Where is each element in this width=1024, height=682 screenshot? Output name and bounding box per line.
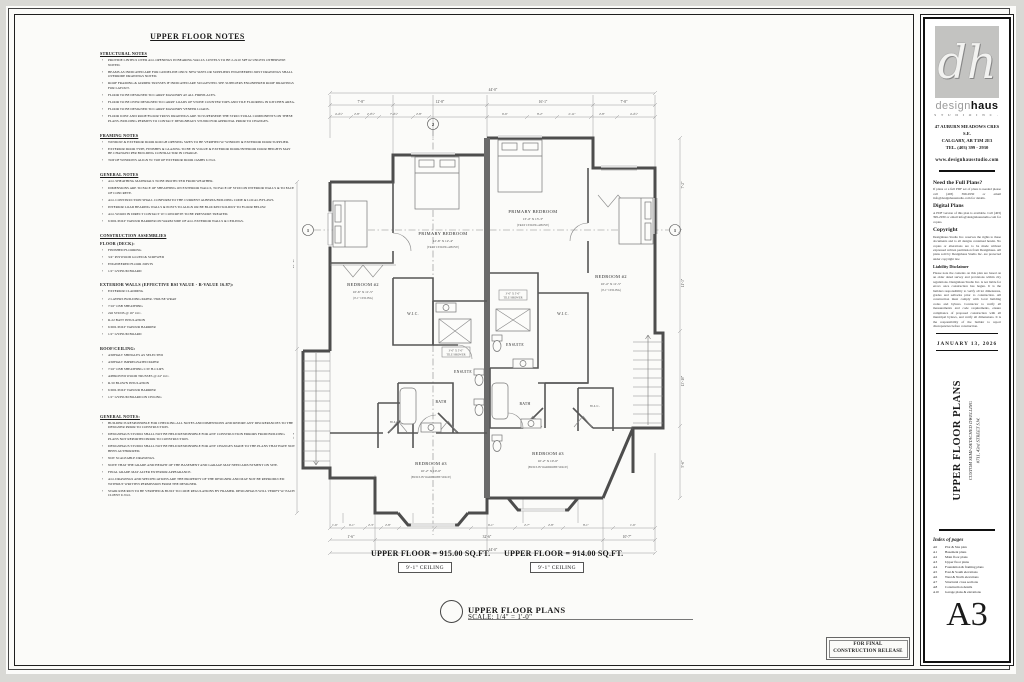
notes-section-general-bottom: GENERAL NOTES: BUILDER IS RESPONSIBLE FO… xyxy=(100,414,295,498)
dim-label: 16'-10" xyxy=(293,257,295,268)
architectural-sheet: { "sheet": { "number": "A3", "date": "JA… xyxy=(0,0,1024,682)
room-sub: (BUILT-IN WARDROBE SPACE) xyxy=(411,475,451,479)
index-row: A10Garage plans & elevations xyxy=(931,590,1003,595)
brand-name: designhaus xyxy=(931,100,1003,112)
titleblock-section-copyright: Copyright Designhaus Studio Inc. reserve… xyxy=(933,227,1001,261)
dim-label: 6'-1" xyxy=(488,523,495,527)
room-dims: 10'-6" X 11'-5" xyxy=(353,290,374,294)
room-label-wic-right: W.I.C. xyxy=(557,312,569,316)
room-sub: (9'-1" CEILING) xyxy=(601,288,621,292)
room-sub: (TRAY CEILING ABOVE) xyxy=(427,245,459,249)
dim-label: 4'-4½" xyxy=(335,112,344,116)
dim-label: 6'-1" xyxy=(349,523,356,527)
index-heading: Index of pages xyxy=(933,538,1003,543)
dim-label: 1'-6" xyxy=(630,523,637,527)
dim-label: 7'-4½" xyxy=(390,112,399,116)
room-label-wic-bottom-left: W.I.C. xyxy=(390,420,400,424)
room-dims: 10'-2" X 10'-6" xyxy=(538,459,559,463)
title-block: dh designhaus S T U D I O I N C . 47 AUB… xyxy=(920,14,1014,666)
dim-label: 12'-8" xyxy=(436,100,445,104)
designhaus-logo-icon: dh xyxy=(937,44,996,81)
dim-label: 16'-1" xyxy=(539,100,548,104)
brand-address: 47 AUBURN MEADOWS CRES S.E. CALGARY, AB … xyxy=(931,124,1003,152)
bed-bedroom2-left xyxy=(333,201,367,247)
room-label-bath-left: BATH xyxy=(435,400,446,404)
dim-label: 4'-4½" xyxy=(630,112,639,116)
notes-section-floor-deck: FLOOR (DECK): FINISHED FLOORING3/4" PLYW… xyxy=(100,241,295,274)
plan-title-bubble xyxy=(440,600,463,623)
dim-label: 2'-7" xyxy=(524,523,531,527)
titleblock-section-digital-plans: Digital Plans A PDF version of this plan… xyxy=(933,203,1001,224)
sheet-date: JANUARY 13, 2026 xyxy=(931,341,1003,347)
ceiling-box-right: 9'-1" CEILING xyxy=(530,562,584,573)
plan-scale: SCALE: 1/4" = 1'-0" xyxy=(468,613,532,621)
sheet-number: A3 xyxy=(931,598,1003,632)
room-dims: 13'-4" X 13'-3" xyxy=(523,217,544,221)
toilet-left-ensuite xyxy=(474,369,484,375)
room-label-primary-right: PRIMARY BEDROOM xyxy=(508,209,557,214)
dim-label: 1'-6" xyxy=(332,523,339,527)
dim-label: 2'-8" xyxy=(354,112,361,116)
dim-label: 7'-2" xyxy=(681,181,685,188)
toilet-left-bath xyxy=(474,399,484,405)
room-dims: 10'-4" X 11'-5" xyxy=(601,282,622,286)
area-label-right: UPPER FLOOR = 914.00 SQ.FT. xyxy=(504,549,623,558)
brand-website: www.designhausstudio.com xyxy=(931,158,1003,163)
shower-label-left: 3'-0" X 5'-0" TILE SHOWER xyxy=(442,347,470,357)
dim-label: 8'-4" xyxy=(293,431,295,438)
notes-section-roof-ceiling: ROOF/CEILING: ASPHALT SHINGLES AS SELECT… xyxy=(100,346,295,400)
notes-section-ext-walls: EXTERIOR WALLS (EFFECTIVE RSI VALUE - R-… xyxy=(100,282,295,336)
notes-section-general: GENERAL NOTES ALL SHEATHING MATERIALS TO… xyxy=(100,172,295,224)
room-sub: (TRAY CEILING ABOVE) xyxy=(517,223,549,227)
room-sub: (BUILT-IN WARDROBE SPACE) xyxy=(528,465,568,469)
room-label-wic-bottom-right: W.I.C. xyxy=(590,404,600,408)
shower-label-right: 3'-0" X 5'-0" TILE SHOWER xyxy=(499,290,527,300)
room-label-bath-right: BATH xyxy=(519,402,530,406)
dim-label: 2'-8" xyxy=(385,523,392,527)
dim-label: 11'-3" xyxy=(681,278,685,287)
dim-label: 2'-8" xyxy=(599,112,606,116)
bed-primary-left xyxy=(415,157,459,209)
area-label-left: UPPER FLOOR = 915.00 SQ.FT. xyxy=(371,549,490,558)
dim-label: 5'-6" xyxy=(681,460,685,467)
notes-column: UPPER FLOOR NOTES STRUCTURAL NOTES PROVI… xyxy=(100,32,295,507)
project-title: UPPER FLOOR PLANS xyxy=(952,380,963,501)
room-label-ensuite-left: ENSUITE xyxy=(454,370,472,374)
toilet-right-bath xyxy=(492,435,502,441)
tub-right xyxy=(492,383,508,419)
dim-label: 32'-6" xyxy=(483,535,492,539)
dim-label: 2'-8" xyxy=(548,523,555,527)
project-title-block: UPPER FLOOR PLANS CUSTOM SEMI-DETACHED D… xyxy=(931,357,1003,525)
dim-label: 7'-8" xyxy=(621,100,628,104)
dim-label: 2'-0½" xyxy=(367,112,376,116)
bed-bedroom2-right xyxy=(619,198,653,244)
stairs-right xyxy=(633,335,663,425)
room-dims: 12'-6" X 12'-4" xyxy=(433,239,454,243)
svg-text:TILE SHOWER: TILE SHOWER xyxy=(446,353,465,357)
dim-overall-top: 44'-0" xyxy=(489,88,498,92)
tub-left xyxy=(400,388,416,424)
brand-tagline: S T U D I O I N C . xyxy=(931,113,1003,117)
dim-label: 6'-6" xyxy=(502,112,509,116)
titleblock-section-liability: Liability Disclaimer Please note the con… xyxy=(933,264,1001,328)
release-stamp: FOR FINAL CONSTRUCTION RELEASE xyxy=(826,637,910,660)
logo-box: dh xyxy=(935,26,999,98)
room-label-ensuite-right: ENSUITE xyxy=(506,343,524,347)
section-marker-2: 2 xyxy=(432,122,435,127)
party-wall xyxy=(484,138,490,498)
notes-section-framing: FRAMING NOTES WINDOW & EXTERIOR DOOR ROU… xyxy=(100,133,295,163)
svg-text:TILE SHOWER: TILE SHOWER xyxy=(503,296,522,300)
room-label-primary-left: PRIMARY BEDROOM xyxy=(418,231,467,236)
floor-plan-drawing: 44'-0" 7'-8" 12'-8" 16'-1" 7'-8" 4'-4½" … xyxy=(293,83,737,561)
release-line2: CONSTRUCTION RELEASE xyxy=(833,649,902,656)
notes-section-assemblies: CONSTRUCTION ASSEMBLIES xyxy=(100,233,295,238)
project-subtitle: CUSTOM SEMI-DETACHED DWELLING #711, 43rd… xyxy=(967,401,982,480)
dim-label: 8'-1" xyxy=(583,523,590,527)
toilet-right-ensuite xyxy=(492,335,502,341)
room-label-bedroom3-right: BEDROOM #3 xyxy=(532,451,564,456)
titleblock-section-full-plans: Need the Full Plans? If plans or a full … xyxy=(933,180,1001,201)
room-label-bedroom2-right: BEDROOM #2 xyxy=(595,274,627,279)
dim-label: 10'-7" xyxy=(623,535,632,539)
room-dims: 10'-2" X 10'-6" xyxy=(421,469,442,473)
room-label-wic-left: W.I.C. xyxy=(407,312,419,316)
dim-label: 2'-3" xyxy=(368,523,375,527)
notes-section-structural: STRUCTURAL NOTES PROVIDE LINTELS OVER AL… xyxy=(100,51,295,124)
dim-label: 2'-11" xyxy=(568,112,576,116)
notes-title: UPPER FLOOR NOTES xyxy=(100,32,295,41)
dim-label: 13'-10" xyxy=(681,375,685,386)
dim-label: 1'-6" xyxy=(348,535,355,539)
room-label-bedroom3-left: BEDROOM #3 xyxy=(415,461,447,466)
section-marker-1-left: 1 xyxy=(307,228,310,233)
dim-label: 7'-8" xyxy=(358,100,365,104)
room-label-bedroom2-left: BEDROOM #2 xyxy=(347,282,379,287)
room-sub: (9'-1" CEILING) xyxy=(353,296,373,300)
section-marker-1-right: 1 xyxy=(674,228,677,233)
index-of-pages: A0Plot & Site planA1Basement plansA2Main… xyxy=(931,545,1003,596)
stairs-left xyxy=(303,353,330,465)
bed-primary-right xyxy=(498,140,542,192)
dim-label: 8'-2" xyxy=(537,112,544,116)
ceiling-box-left: 9'-1" CEILING xyxy=(398,562,452,573)
dim-label: 2'-8" xyxy=(416,112,423,116)
